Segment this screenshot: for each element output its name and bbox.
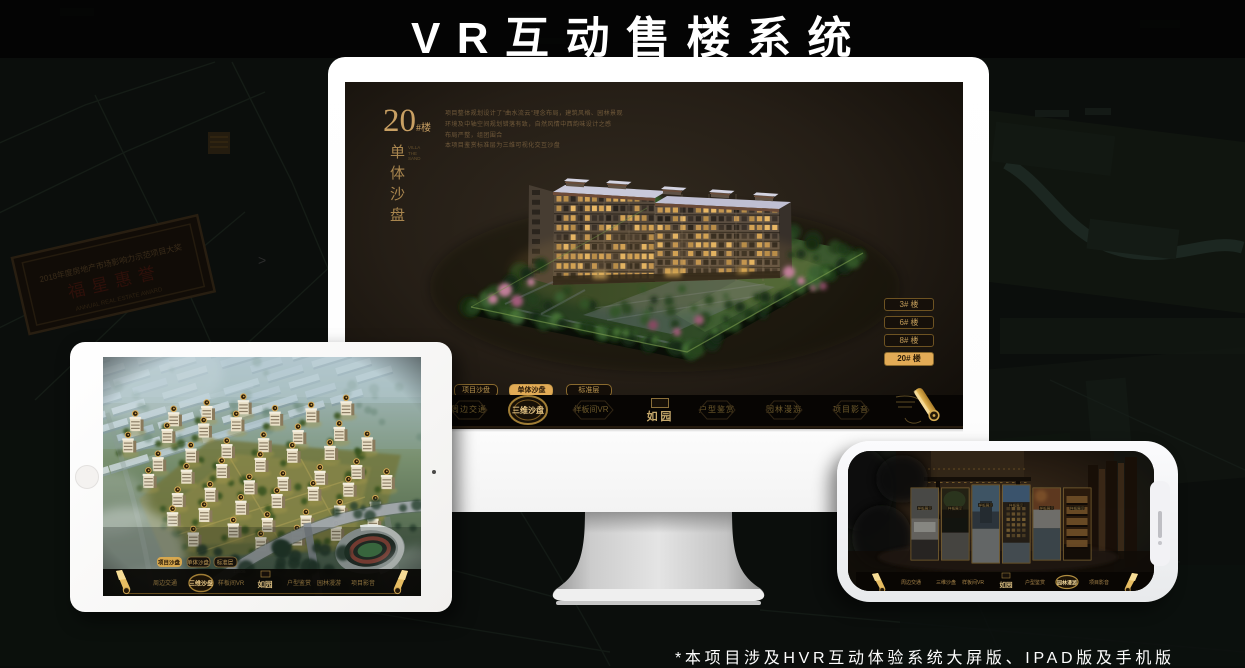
svg-text:三维沙盘: 三维沙盘 [936,579,956,586]
svg-text:园林漫游: 园林漫游 [1057,579,1077,586]
svg-text:户型鉴赏: 户型鉴赏 [1025,579,1045,586]
svg-text:样板间VR: 样板间VR [962,579,984,586]
svg-text:周边交通: 周边交通 [901,579,921,586]
svg-text:如园: 如园 [1000,580,1014,589]
svg-text:项目影音: 项目影音 [1089,579,1109,586]
svg-text:>: > [258,252,266,268]
